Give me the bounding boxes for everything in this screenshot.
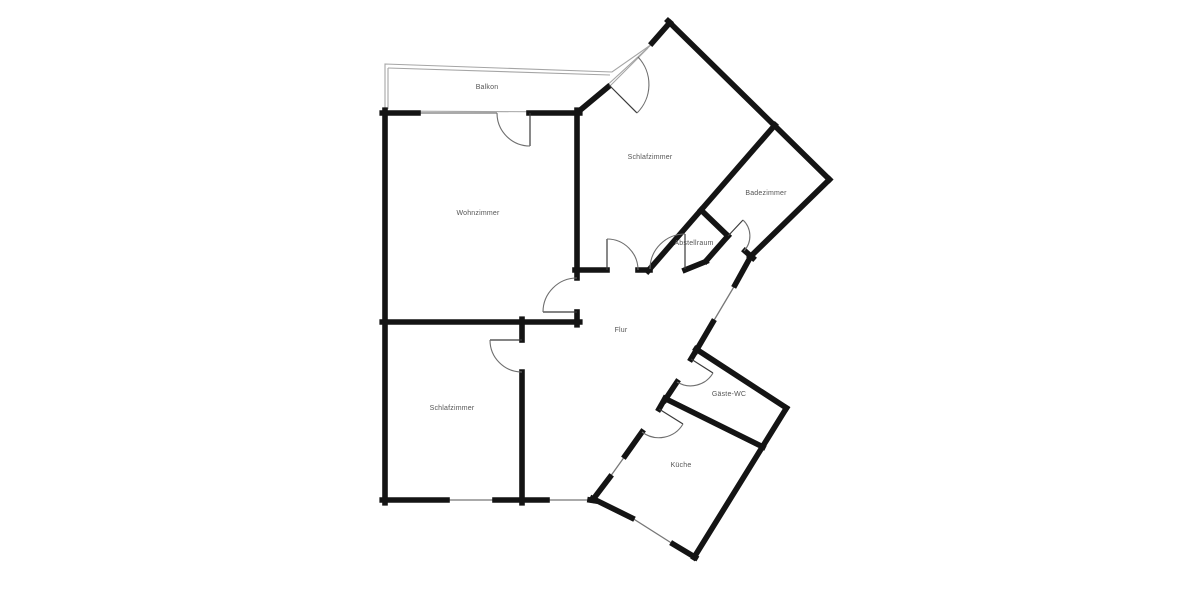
room-label-gaeste-wc: Gäste-WC	[712, 391, 746, 398]
door-wohnzimmer	[543, 278, 577, 312]
room-label-flur: Flur	[615, 327, 628, 334]
window-kueche-northwest	[610, 456, 625, 477]
door-balkon	[497, 113, 530, 146]
room-label-balkon: Balkon	[476, 84, 499, 91]
floor-plan-drawing: BalkonWohnzimmerSchlafzimmerBadezimmerAb…	[0, 0, 1200, 600]
balcony-outline	[385, 44, 652, 112]
floor-plan-page: BalkonWohnzimmerSchlafzimmerBadezimmerAb…	[0, 0, 1200, 600]
room-label-badezimmer: Badezimmer	[745, 190, 787, 197]
wall-gaestewc-northeast	[696, 349, 787, 408]
door-schlafzimmer2	[490, 340, 522, 372]
room-labels: BalkonWohnzimmerSchlafzimmerBadezimmerAb…	[430, 84, 788, 469]
window-flur-east	[713, 285, 735, 322]
room-label-schlafzimmer-2: Schlafzimmer	[430, 405, 475, 412]
door-schlafzimmer1-flur	[607, 239, 638, 270]
room-label-schlafzimmer-1: Schlafzimmer	[628, 154, 673, 161]
door-kueche	[642, 409, 683, 438]
room-label-abstellraum: Abstellraum	[674, 240, 713, 247]
wall-schlafzimmer1-west-diag	[577, 87, 608, 113]
wall-gaestewc-kueche-divider	[665, 399, 763, 448]
wall-block-east	[694, 408, 787, 558]
door-gaeste-wc	[677, 359, 713, 386]
room-label-wohnzimmer: Wohnzimmer	[456, 210, 500, 217]
room-label-kueche: Küche	[671, 462, 692, 469]
window-kueche-southwest	[632, 518, 673, 544]
walls	[382, 21, 829, 558]
